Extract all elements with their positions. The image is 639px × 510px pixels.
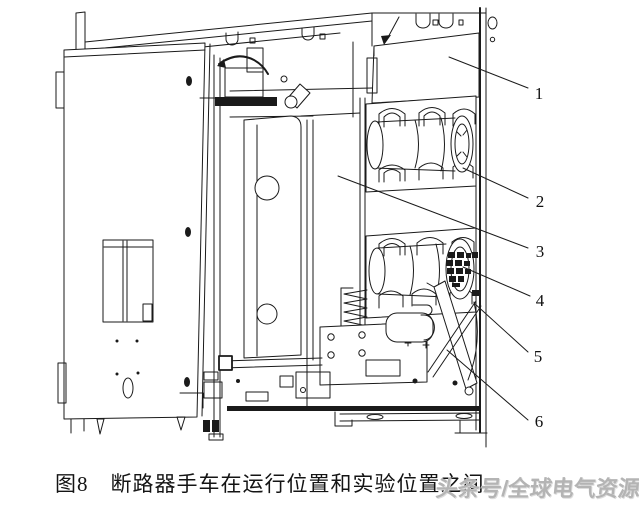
callout-number-2: 2	[536, 192, 545, 211]
callout-number-3: 3	[536, 242, 545, 261]
upper-bushing-assembly	[366, 96, 476, 192]
lifting-hook	[219, 56, 268, 74]
technical-drawing: 1 2 3 4 5 6	[0, 0, 639, 510]
frame-hole-lower	[257, 304, 277, 324]
handcart-top-mechanism	[200, 48, 310, 108]
callout-number-6: 6	[535, 412, 544, 431]
figure-page: 1 2 3 4 5 6 图8 断路器手车在运行位置和实验位置之间 头条号/全球电…	[0, 0, 639, 510]
frame-hole-upper	[255, 176, 279, 200]
cabinet-floor	[227, 406, 487, 433]
shutter-panel	[372, 33, 479, 103]
figure-caption: 图8 断路器手车在运行位置和实验位置之间	[55, 468, 485, 498]
callout-number-5: 5	[534, 347, 543, 366]
wall-hole-mark	[488, 17, 497, 29]
contact-spring	[341, 288, 367, 328]
callout-number-1: 1	[535, 84, 544, 103]
drive-motor	[386, 313, 433, 342]
watermark: 头条号/全球电气资源	[434, 471, 639, 503]
door-hinge-upper	[56, 72, 64, 108]
movement-arrow	[381, 17, 399, 45]
cabinet-door	[56, 43, 210, 434]
propulsion-mechanism	[180, 305, 458, 440]
callout-number-4: 4	[536, 291, 545, 310]
